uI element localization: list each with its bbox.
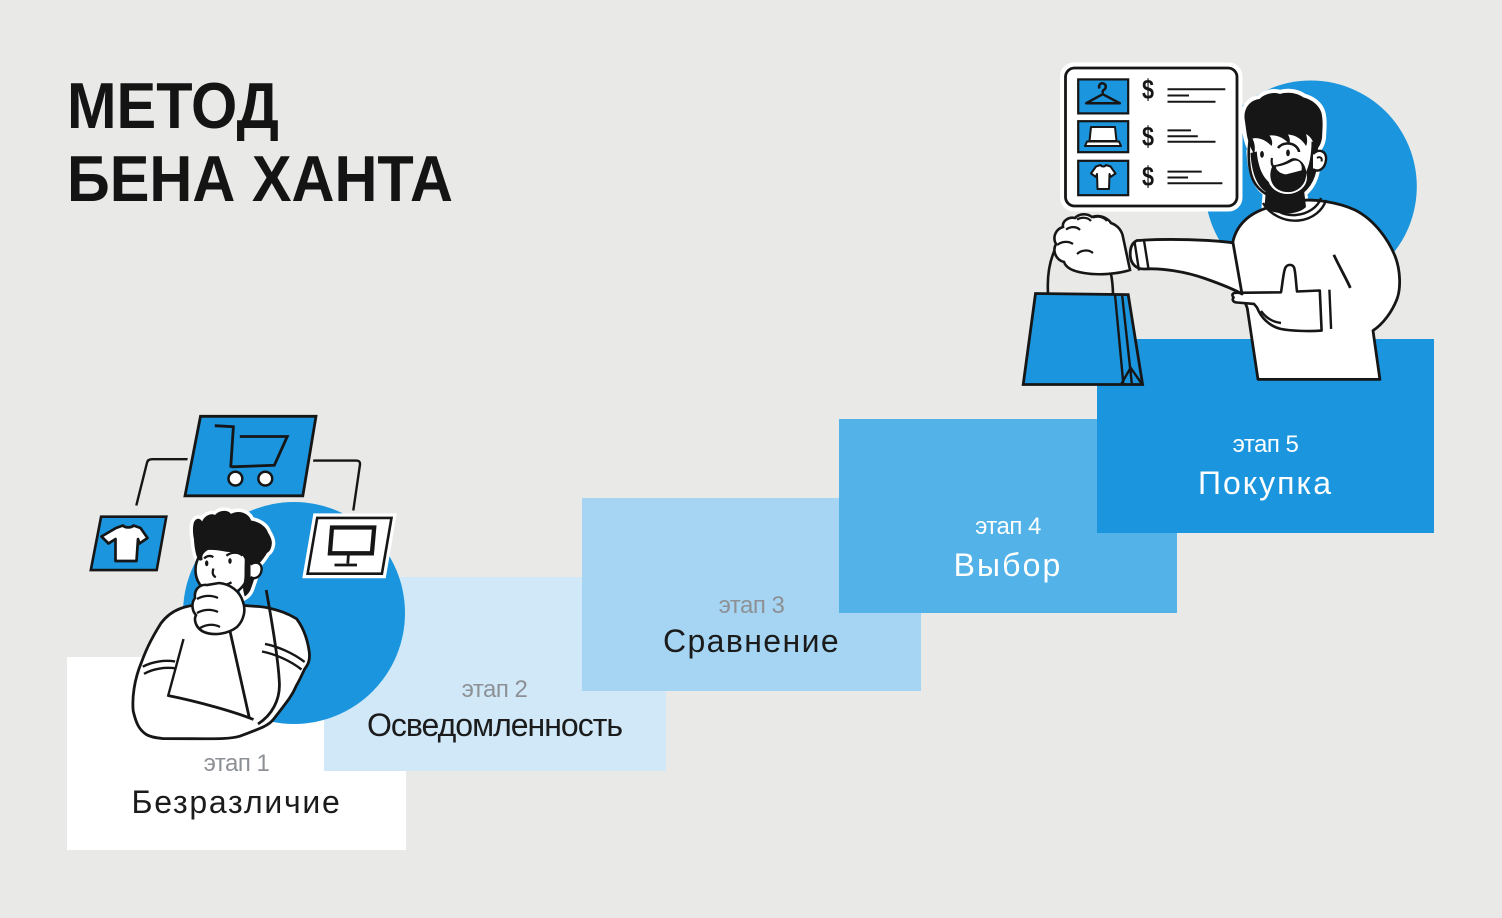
svg-text:$: $ — [1142, 74, 1154, 105]
svg-text:$: $ — [1142, 161, 1154, 192]
svg-text:$: $ — [1142, 121, 1154, 152]
